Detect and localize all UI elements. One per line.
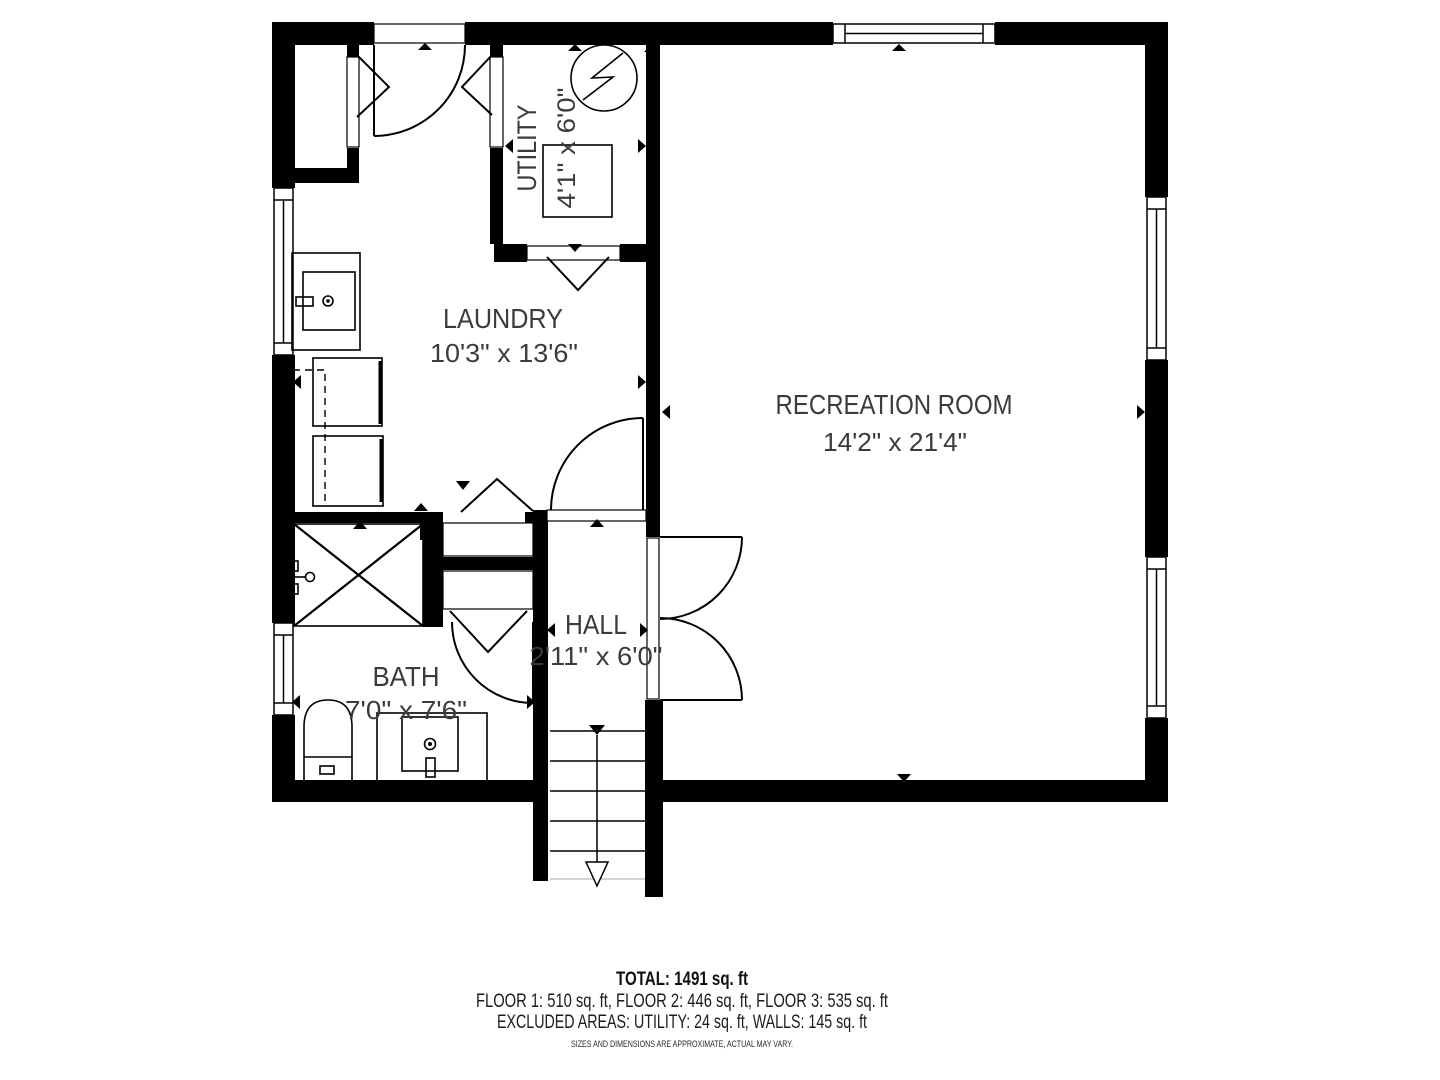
dims-hall: 2'11" x 6'0" (530, 641, 663, 671)
wall-segment (288, 512, 443, 523)
window-top (833, 24, 995, 43)
stairs-down (550, 725, 645, 886)
wall-segment (272, 355, 295, 623)
wall-segment (433, 557, 533, 570)
utility-bottom-chevron (547, 257, 609, 290)
wall-segment (525, 512, 533, 523)
threshold (443, 571, 533, 609)
dim-arrow (638, 375, 646, 389)
wall-segment (494, 244, 527, 262)
window-right-lower (1147, 557, 1166, 718)
laundry-hall-door (551, 418, 643, 510)
wall-segment (646, 45, 660, 537)
wall-segment (995, 22, 1168, 45)
bath-passage-chevron (450, 611, 527, 652)
label-recreation: RECREATION ROOM (776, 389, 1013, 420)
dims-bath: 7'0" x 7'6" (345, 695, 467, 725)
dim-arrow (414, 503, 428, 511)
floor-plan-page: LAUNDRY 10'3" x 13'6" RECREATION ROOM 14… (0, 0, 1440, 1080)
wall-segment (645, 700, 663, 897)
dims-utility: 4'1" x 6'0" (553, 88, 581, 209)
dim-arrow (568, 44, 582, 51)
stairs-direction-start (589, 725, 605, 735)
footer-disclaimer: SIZES AND DIMENSIONS ARE APPROXIMATE, AC… (571, 1039, 793, 1049)
threshold (374, 24, 465, 43)
threshold (347, 57, 359, 147)
window-left-laundry (274, 188, 293, 355)
threshold (443, 523, 533, 556)
dims-recreation: 14'2" x 21'4" (823, 427, 967, 457)
room-labels: LAUNDRY 10'3" x 13'6" RECREATION ROOM 14… (345, 88, 1013, 726)
dim-arrow (892, 44, 906, 51)
threshold (547, 510, 646, 521)
window-right-upper (1147, 197, 1166, 360)
laundry-passage-chevron (461, 479, 533, 512)
floor-plan: LAUNDRY 10'3" x 13'6" RECREATION ROOM 14… (0, 0, 1440, 1080)
wall-segment (423, 540, 443, 627)
footer: TOTAL: 1491 sq. ft FLOOR 1: 510 sq. ft, … (476, 969, 889, 1049)
stairs-direction-arrowhead (586, 862, 608, 886)
entry-door (374, 45, 465, 136)
bath-door (452, 622, 533, 703)
label-bath: BATH (373, 661, 440, 692)
wall-segment (295, 168, 359, 183)
dim-arrow (456, 481, 470, 490)
footer-floor-areas: FLOOR 1: 510 sq. ft, FLOOR 2: 446 sq. ft… (476, 991, 889, 1012)
wall-segment (620, 244, 646, 262)
dim-arrow (662, 405, 670, 419)
dims-laundry: 10'3" x 13'6" (430, 338, 578, 368)
dim-arrow (418, 43, 432, 50)
dim-arrow (547, 623, 555, 637)
threshold (490, 57, 503, 147)
wall-segment (272, 780, 535, 802)
wall-segment (1145, 360, 1168, 557)
recreation-double-door (660, 537, 742, 700)
footer-total-area: TOTAL: 1491 sq. ft (616, 969, 749, 990)
wall-segment (663, 780, 1168, 802)
label-hall: HALL (565, 609, 627, 640)
label-laundry: LAUNDRY (443, 303, 563, 334)
wall-segment (1145, 22, 1168, 197)
utility-opening-chevron (462, 55, 492, 115)
footer-excluded-areas: EXCLUDED AREAS: UTILITY: 24 sq. ft, WALL… (497, 1012, 868, 1033)
washer-dryer (293, 358, 383, 506)
shower (290, 524, 423, 626)
threshold (647, 538, 659, 699)
wall-segment (272, 22, 295, 188)
label-utility: UTILITY (512, 105, 542, 192)
window-left-bath (274, 623, 293, 715)
dim-arrow (638, 139, 646, 153)
wall-segment (490, 148, 503, 244)
dim-arrow (1137, 405, 1145, 419)
wall-segment (533, 510, 548, 881)
laundry-sink (292, 253, 360, 350)
walls (272, 22, 1168, 897)
wall-segment (465, 22, 833, 45)
